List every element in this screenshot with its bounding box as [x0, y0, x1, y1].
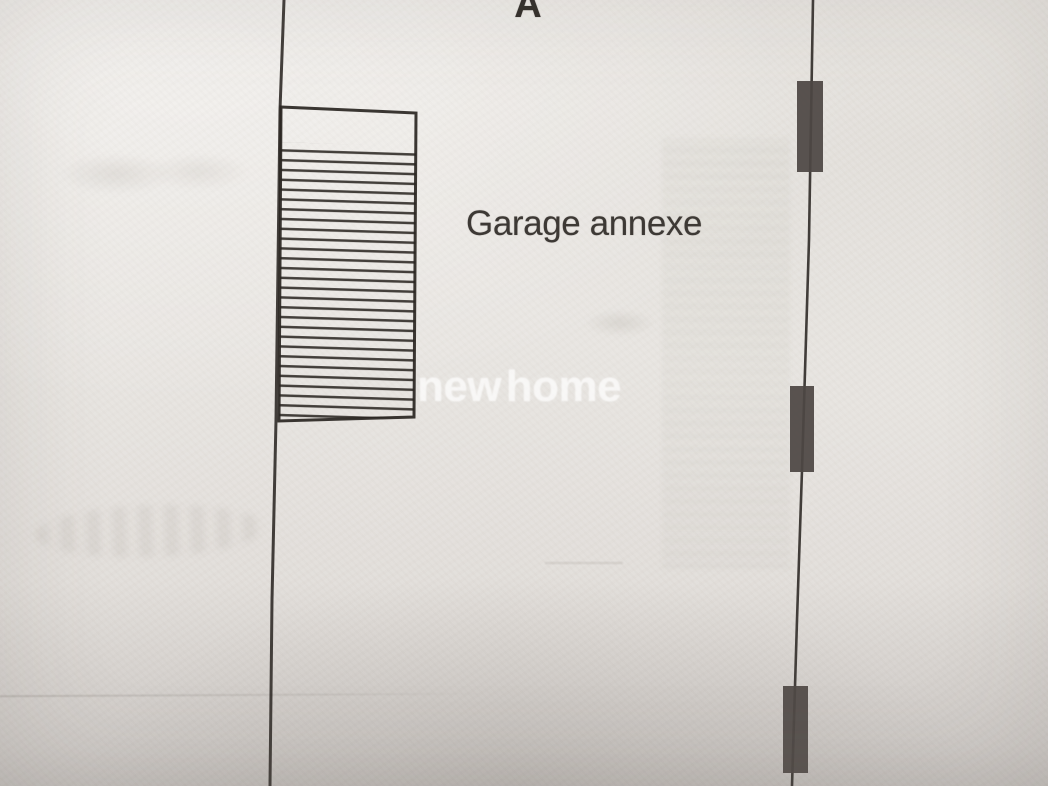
- scanned-site-plan: A Garage annexe new home: [0, 0, 1048, 786]
- scan-vignette: [0, 0, 1048, 786]
